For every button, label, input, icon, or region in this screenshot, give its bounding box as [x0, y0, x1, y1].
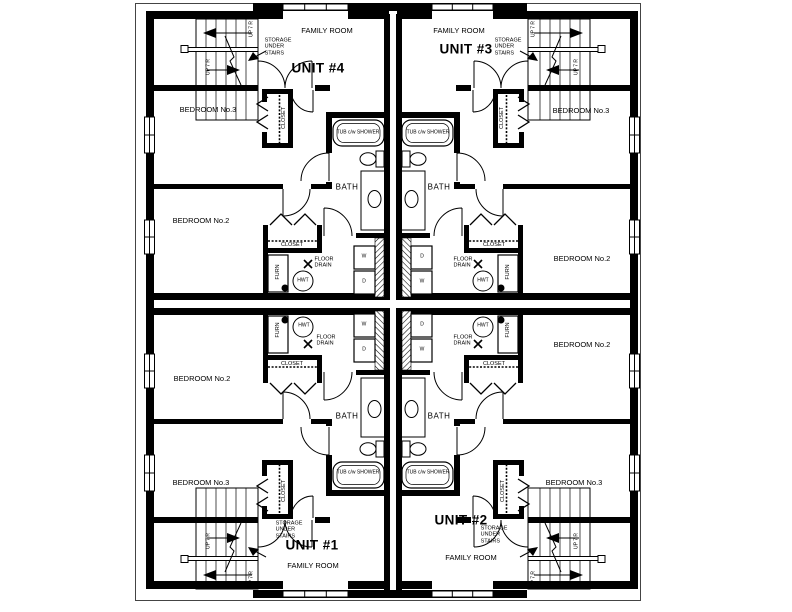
unit4-dryer-label: D — [362, 279, 366, 285]
floor-plan-drawing — [0, 0, 792, 612]
unit4-stairs-up-label-a: UP 7 R — [249, 21, 255, 37]
unit1-bedroom3-label: BEDROOM No.3 — [173, 479, 230, 487]
unit3-dryer-label: D — [420, 254, 424, 260]
unit3-bedroom2-closet-label: CLOSET — [483, 242, 505, 248]
unit3-stairs-up-label-b: UP 7 R — [574, 59, 580, 75]
unit3-furnace-label: FURN — [505, 264, 511, 279]
unit2-stairs-up-label-b: UP 7 R — [574, 533, 580, 549]
floor-plan-page: FAMILY ROOM UNIT #4 STORAGE UNDER STAIRS… — [0, 0, 792, 612]
unit3-family-room-label: FAMILY ROOM — [433, 27, 484, 35]
unit4-family-room-label: FAMILY ROOM — [301, 27, 352, 35]
unit2-stairs-up-label-a: UP 7 R — [531, 571, 537, 587]
unit4-name-label: UNIT #4 — [291, 62, 344, 77]
unit2-tub-label: TUB c/w SHOWER — [407, 470, 450, 476]
unit4-bedroom3-closet-label: CLOSET — [281, 107, 287, 129]
unit1-furnace-label: FURN — [275, 322, 281, 337]
unit1-storage-label: STORAGE UNDER STAIRS — [276, 521, 303, 540]
unit3-washer-label: W — [420, 279, 425, 285]
unit4-bath-label: BATH — [336, 184, 359, 193]
unit2-family-room-label: FAMILY ROOM — [445, 554, 496, 562]
unit4-bedroom2-label: BEDROOM No.2 — [173, 217, 230, 225]
unit4-bedroom2-closet-label: CLOSET — [281, 242, 303, 248]
unit4-geometry — [148, 14, 390, 300]
unit1-stairs-up-label-a: UP 7 R — [249, 571, 255, 587]
unit3-name-label: UNIT #3 — [439, 43, 492, 58]
unit1-stairs-up-label-b: UP 7 R — [206, 533, 212, 549]
unit1-bedroom2-label: BEDROOM No.2 — [174, 375, 231, 383]
unit3-hwt-label: HWT — [477, 278, 488, 284]
unit2-geometry — [396, 308, 638, 594]
unit2-dryer-label: D — [420, 322, 424, 328]
unit1-hwt-label: HWT — [298, 323, 309, 329]
unit1-washer-label: W — [362, 322, 367, 328]
unit2-name-label: UNIT #2 — [434, 514, 487, 529]
unit2-storage-label: STORAGE UNDER STAIRS — [481, 526, 508, 545]
unit3-tub-label: TUB c/w SHOWER — [407, 130, 450, 136]
unit3-bedroom3-closet-label: CLOSET — [499, 107, 505, 129]
unit4-storage-label: STORAGE UNDER STAIRS — [265, 38, 292, 57]
unit4-hwt-label: HWT — [297, 278, 308, 284]
unit3-floor-drain-label: FLOOR DRAIN — [454, 257, 473, 270]
windows — [145, 4, 640, 597]
unit2-hwt-label: HWT — [477, 323, 488, 329]
unit4-furnace-label: FURN — [275, 264, 281, 279]
unit2-floor-drain-label: FLOOR DRAIN — [454, 335, 473, 348]
unit4-tub-label: TUB c/w SHOWER — [337, 130, 380, 136]
unit4-washer-label: W — [362, 254, 367, 260]
unit3-storage-label: STORAGE UNDER STAIRS — [495, 38, 522, 57]
unit3-stairs-up-label-a: UP 7 R — [531, 21, 537, 37]
unit4-bedroom3-label: BEDROOM No.3 — [180, 106, 237, 114]
unit2-furnace-label: FURN — [505, 322, 511, 337]
unit3-bath-label: BATH — [428, 184, 451, 193]
unit2-washer-label: W — [420, 347, 425, 353]
unit2-bath-label: BATH — [428, 413, 451, 422]
unit1-name-label: UNIT #1 — [285, 539, 338, 554]
unit1-bedroom3-closet-label: CLOSET — [281, 480, 287, 502]
unit4-stairs-up-label-b: UP 7 R — [206, 59, 212, 75]
unit1-bedroom2-closet-label: CLOSET — [281, 361, 303, 367]
unit1-dryer-label: D — [362, 347, 366, 353]
unit3-bedroom3-label: BEDROOM No.3 — [553, 107, 610, 115]
unit1-geometry — [148, 308, 390, 594]
unit3-bedroom2-label: BEDROOM No.2 — [554, 255, 611, 263]
unit1-floor-drain-label: FLOOR DRAIN — [317, 335, 336, 348]
unit1-tub-label: TUB c/w SHOWER — [337, 470, 380, 476]
unit1-bath-label: BATH — [336, 413, 359, 422]
unit2-bedroom2-closet-label: CLOSET — [483, 361, 505, 367]
unit2-bedroom3-closet-label: CLOSET — [500, 480, 506, 502]
unit2-bedroom2-label: BEDROOM No.2 — [554, 341, 611, 349]
unit4-floor-drain-label: FLOOR DRAIN — [315, 257, 334, 270]
unit2-bedroom3-label: BEDROOM No.3 — [546, 479, 603, 487]
unit1-family-room-label: FAMILY ROOM — [287, 562, 338, 570]
